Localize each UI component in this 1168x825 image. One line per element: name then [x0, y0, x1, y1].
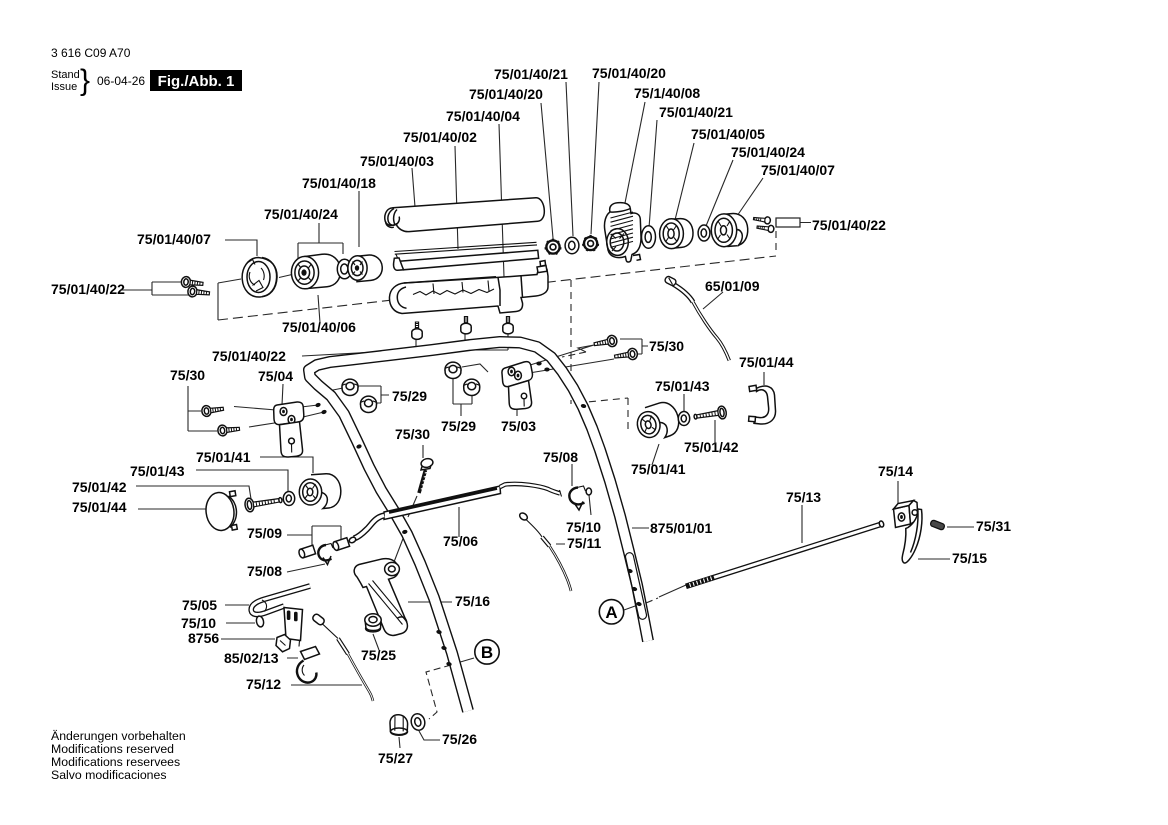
svg-text:75/29: 75/29: [441, 418, 476, 434]
svg-text:3 616 C09 A70: 3 616 C09 A70: [51, 46, 131, 60]
svg-text:75/01/40/22: 75/01/40/22: [812, 217, 886, 233]
svg-text:A: A: [605, 603, 617, 622]
svg-text:75/30: 75/30: [649, 338, 684, 354]
svg-text:75/01/41: 75/01/41: [196, 449, 251, 465]
svg-text:75/01/40/22: 75/01/40/22: [51, 281, 125, 297]
svg-text:75/08: 75/08: [543, 449, 578, 465]
svg-text:75/01/40/20: 75/01/40/20: [469, 86, 543, 102]
svg-text:75/05: 75/05: [182, 597, 217, 613]
svg-text:Stand: Stand: [51, 69, 80, 81]
svg-text:8756: 8756: [188, 630, 219, 646]
svg-text:Fig./Abb. 1: Fig./Abb. 1: [158, 73, 235, 90]
svg-text:75/06: 75/06: [443, 533, 478, 549]
svg-text:75/10: 75/10: [181, 615, 216, 631]
svg-text:75/10: 75/10: [566, 519, 601, 535]
svg-text:75/01/42: 75/01/42: [72, 479, 127, 495]
svg-text:Modifications reservees: Modifications reservees: [51, 755, 180, 769]
svg-text:75/01/40/22: 75/01/40/22: [212, 348, 286, 364]
svg-text:75/14: 75/14: [878, 463, 913, 479]
svg-text:75/03: 75/03: [501, 418, 536, 434]
svg-text:75/01/43: 75/01/43: [655, 378, 710, 394]
svg-text:75/01/40/20: 75/01/40/20: [592, 65, 666, 81]
svg-text:B: B: [481, 643, 493, 662]
svg-text:75/01/40/24: 75/01/40/24: [731, 144, 805, 160]
svg-text:75/11: 75/11: [567, 535, 601, 551]
svg-text:75/01/40/02: 75/01/40/02: [403, 129, 477, 145]
svg-text:75/01/40/05: 75/01/40/05: [691, 126, 765, 142]
svg-text:65/01/09: 65/01/09: [705, 278, 760, 294]
svg-text:75/01/40/18: 75/01/40/18: [302, 175, 376, 191]
svg-text:75/04: 75/04: [258, 368, 293, 384]
svg-text:75/16: 75/16: [455, 593, 490, 609]
svg-text:75/01/40/04: 75/01/40/04: [446, 108, 520, 124]
svg-text:75/01/40/07: 75/01/40/07: [137, 231, 211, 247]
svg-text:75/01/40/07: 75/01/40/07: [761, 162, 835, 178]
svg-text:875/01/01: 875/01/01: [650, 520, 712, 536]
svg-text:75/13: 75/13: [786, 489, 821, 505]
svg-text:75/30: 75/30: [170, 367, 205, 383]
svg-text:75/12: 75/12: [246, 676, 281, 692]
svg-text:75/01/43: 75/01/43: [130, 463, 185, 479]
svg-text:75/1/40/08: 75/1/40/08: [634, 85, 700, 101]
svg-text:Änderungen vorbehalten: Änderungen vorbehalten: [51, 729, 186, 743]
svg-text:75/27: 75/27: [378, 750, 413, 766]
svg-text:75/01/41: 75/01/41: [631, 461, 686, 477]
svg-text:75/08: 75/08: [247, 563, 282, 579]
svg-text:85/02/13: 85/02/13: [224, 650, 279, 666]
svg-text:75/01/40/03: 75/01/40/03: [360, 153, 434, 169]
svg-text:75/29: 75/29: [392, 388, 427, 404]
svg-text:Salvo modificaciones: Salvo modificaciones: [51, 768, 167, 782]
svg-text:06-04-26: 06-04-26: [97, 74, 145, 88]
svg-text:75/01/42: 75/01/42: [684, 439, 739, 455]
svg-text:Issue: Issue: [51, 81, 77, 93]
svg-text:75/01/44: 75/01/44: [739, 354, 794, 370]
svg-text:75/26: 75/26: [442, 731, 477, 747]
svg-text:75/01/44: 75/01/44: [72, 499, 127, 515]
svg-text:75/09: 75/09: [247, 525, 282, 541]
svg-text:75/30: 75/30: [395, 426, 430, 442]
svg-text:75/31: 75/31: [976, 518, 1011, 534]
svg-text:75/01/40/24: 75/01/40/24: [264, 206, 338, 222]
svg-text:Modifications reserved: Modifications reserved: [51, 742, 174, 756]
svg-text:75/01/40/21: 75/01/40/21: [494, 66, 568, 82]
svg-text:75/01/40/21: 75/01/40/21: [659, 104, 733, 120]
svg-text:}: }: [80, 64, 90, 97]
svg-text:75/01/40/06: 75/01/40/06: [282, 319, 356, 335]
svg-text:75/15: 75/15: [952, 550, 987, 566]
